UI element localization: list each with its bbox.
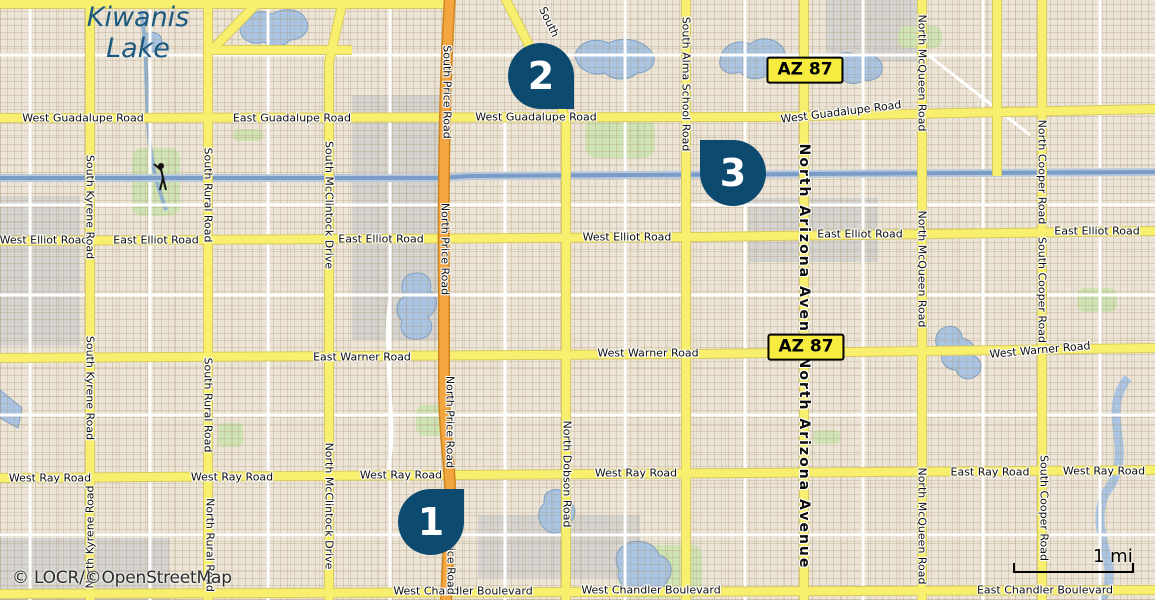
road-label-vertical: North Price Road bbox=[444, 376, 457, 468]
road-label: East Elliot Road bbox=[817, 228, 903, 241]
map-marker-2[interactable]: 2 bbox=[508, 43, 574, 109]
road-label-vertical: South Kyrene Road bbox=[84, 336, 97, 440]
road-label-vertical: South Rural Road bbox=[202, 357, 215, 452]
route-shield: AZ 87 bbox=[767, 334, 844, 361]
map-marker-3[interactable]: 3 bbox=[700, 140, 766, 206]
road-label: West Chandler Boulevard bbox=[581, 584, 720, 597]
road-label-vertical: North McQueen Road bbox=[916, 210, 929, 327]
road-label: East Elliot Road bbox=[338, 233, 424, 246]
road-label: East Ray Road bbox=[951, 466, 1030, 479]
road-label-vertical: South Kyrene Road bbox=[84, 155, 97, 259]
road-label: East Guadalupe Road bbox=[233, 112, 351, 125]
minor-roads bbox=[0, 0, 1155, 600]
lake-name-line2: Lake bbox=[68, 33, 208, 64]
road-label-vertical: North Arizona Avenue bbox=[796, 357, 812, 570]
road-label: West Elliot Road bbox=[0, 234, 88, 247]
road-label-vertical: North Arizona Avenue bbox=[796, 144, 812, 357]
golfer-icon bbox=[151, 162, 173, 192]
road-label: West Elliot Road bbox=[583, 231, 672, 244]
lake-name-label: Kiwanis Lake bbox=[68, 2, 208, 64]
road-label-vertical: South Rural Road bbox=[202, 147, 215, 242]
road-label: West Ray Road bbox=[9, 472, 91, 485]
road-label-vertical: South Alma School Road bbox=[680, 17, 693, 152]
route-shield: AZ 87 bbox=[766, 57, 843, 84]
road-label-vertical: North McQueen Road bbox=[916, 14, 929, 131]
map-canvas[interactable]: Kiwanis Lake West Guadalupe RoadEast Gua… bbox=[0, 0, 1155, 600]
road-label: East Elliot Road bbox=[1054, 225, 1140, 238]
map-marker-1[interactable]: 1 bbox=[398, 489, 464, 555]
road-label-vertical: North McClintock Drive bbox=[323, 443, 336, 570]
road-label: East Chandler Boulevard bbox=[977, 584, 1113, 597]
scale-bar-tick-right bbox=[1132, 563, 1134, 573]
road-label: West Ray Road bbox=[360, 469, 442, 482]
road-label-vertical: South McClintock Drive bbox=[323, 141, 336, 269]
road-label: West Ray Road bbox=[595, 467, 677, 480]
road-label-vertical: North Dobson Road bbox=[561, 421, 574, 528]
road-label: East Warner Road bbox=[313, 351, 411, 364]
scale-bar bbox=[1013, 562, 1134, 574]
road-label: West Guadalupe Road bbox=[475, 111, 596, 124]
map-attribution: © LOCR/©OpenStreetMap bbox=[12, 568, 232, 588]
road-label: West Guadalupe Road bbox=[22, 112, 143, 125]
scale-bar-line bbox=[1013, 571, 1134, 573]
road-label: West Ray Road bbox=[1063, 465, 1145, 478]
road-label-vertical: South Price Road bbox=[441, 45, 454, 138]
road-label-vertical: North McQueen Road bbox=[916, 467, 929, 584]
road-label: West Chandler Boulevard bbox=[393, 585, 532, 598]
road-label-vertical: North Price Road bbox=[439, 203, 452, 295]
lake-name-line1: Kiwanis bbox=[68, 2, 208, 33]
road-label-vertical: South Cooper Road bbox=[1038, 455, 1051, 561]
road-label: East Elliot Road bbox=[113, 234, 199, 247]
roads-layer bbox=[0, 0, 1155, 600]
road-label-vertical: South Cooper Road bbox=[1036, 237, 1049, 343]
road-label: West Warner Road bbox=[597, 347, 698, 360]
road-label: West Ray Road bbox=[191, 471, 273, 484]
road-label-vertical: North Cooper Road bbox=[1036, 120, 1049, 225]
